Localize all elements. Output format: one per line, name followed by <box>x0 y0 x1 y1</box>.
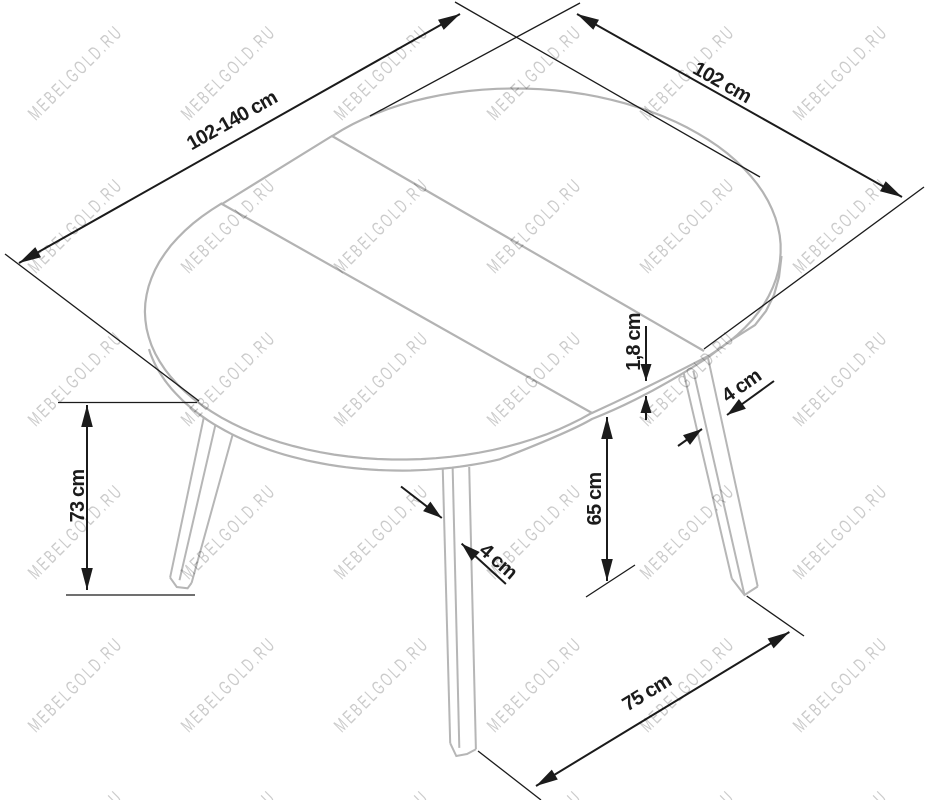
svg-text:1,8 cm: 1,8 cm <box>623 313 645 370</box>
svg-text:65 cm: 65 cm <box>584 473 606 526</box>
